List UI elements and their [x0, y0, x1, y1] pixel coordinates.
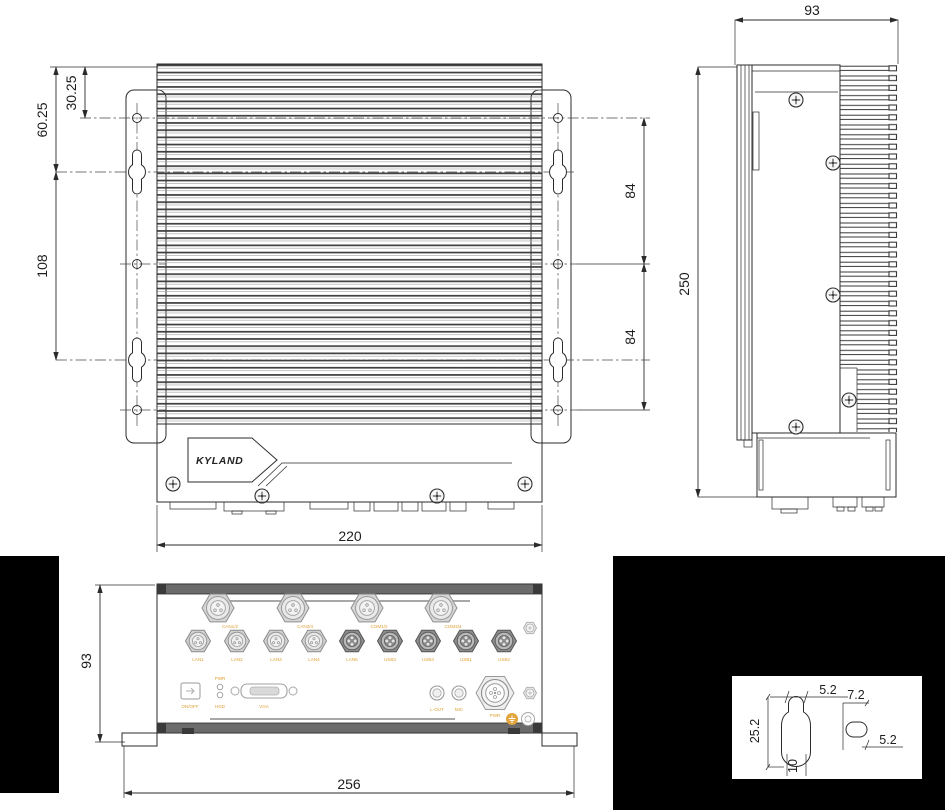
- front-panel: KYLAND: [166, 438, 532, 503]
- vga-screw: [289, 687, 297, 695]
- mic-label: MIC: [455, 707, 464, 712]
- hdd-led-label: HDD: [215, 704, 226, 709]
- keyhole-slot: [129, 150, 146, 194]
- com34-label: COM3/4: [444, 624, 462, 629]
- pwr-led: [217, 684, 223, 690]
- dim-5-2-right: 5.2: [879, 733, 896, 747]
- vga-label: VGA: [259, 704, 270, 709]
- pwr-led-label: PWR: [215, 676, 226, 681]
- side-screw: [789, 93, 803, 107]
- can-com-connectors: CAN1/2 CAN3/4 COM1/2 COM3/4: [202, 594, 462, 629]
- lan4-connector: [302, 630, 327, 652]
- usb1-label: USB1: [460, 657, 472, 662]
- lan3-label: LAN3: [270, 657, 282, 662]
- usb4-connector: [416, 630, 441, 652]
- side-view: 93 250: [676, 2, 898, 513]
- ground-symbol: [506, 713, 518, 725]
- dim-5-2-top: 5.2: [819, 683, 836, 697]
- ground-stud: [522, 713, 535, 726]
- usb2-label: USB2: [498, 657, 510, 662]
- lan5-label: LAN5: [346, 657, 358, 662]
- lan4-label: LAN4: [308, 657, 320, 662]
- logo-swoosh-2: [266, 466, 287, 486]
- panel-screw: [430, 489, 444, 503]
- logo-swoosh: [258, 463, 512, 486]
- mounting-plate-edge: [737, 65, 752, 440]
- chassis-screw: [524, 687, 537, 698]
- mounting-foot-right: [542, 733, 577, 746]
- hdd-led: [217, 692, 223, 698]
- can34-connector: [277, 594, 309, 622]
- mounting-foot-left: [122, 733, 157, 746]
- dim-7-2: 7.2: [847, 688, 864, 702]
- black-mask-left: [0, 556, 59, 793]
- usb3-label: USB3: [384, 657, 396, 662]
- dim-60-25: 60.25: [34, 102, 50, 137]
- power-label: PWR: [490, 713, 501, 718]
- lineout-label: L-OUT: [430, 707, 444, 712]
- lan2-connector: [225, 630, 250, 652]
- keyhole-slot: [550, 150, 567, 194]
- lan5-connector: [340, 630, 365, 652]
- dim-256: 256: [337, 776, 361, 792]
- dim-84-bottom: 84: [622, 329, 638, 345]
- chassis-screw: [524, 622, 537, 633]
- side-body: [752, 65, 840, 433]
- dimensional-drawing: KYLAND 30.25 60.: [0, 0, 945, 810]
- side-fins-upper: [840, 65, 898, 368]
- panel-screw: [166, 477, 180, 491]
- dim-108: 108: [34, 254, 50, 278]
- side-screw: [826, 288, 840, 302]
- lan-usb-connectors: LAN1 LAN2 LAN3 LAN4 LAN5 USB3 USB4 USB1 …: [186, 630, 517, 662]
- panel-screw: [255, 489, 269, 503]
- usb4-label: USB4: [422, 657, 434, 662]
- side-screw: [826, 156, 840, 170]
- brand-logo: KYLAND: [196, 455, 243, 467]
- keyhole-slot: [550, 338, 567, 382]
- lan1-connector: [186, 630, 211, 652]
- power-connector: [476, 677, 514, 710]
- io-connector-stubs: [170, 502, 514, 514]
- dim-93-bottom: 93: [78, 653, 94, 669]
- com12-label: COM1/2: [370, 624, 388, 629]
- technical-drawing-page: KYLAND 30.25 60.: [0, 0, 945, 810]
- usb2-connector: [492, 630, 517, 652]
- power-button-label: ON/OFF: [181, 704, 199, 709]
- lan1-label: LAN1: [192, 657, 204, 662]
- dim-220: 220: [338, 528, 362, 544]
- dim-30-25: 30.25: [63, 75, 79, 110]
- lan3-connector: [264, 630, 289, 652]
- bottom-edge-bar: [157, 723, 542, 733]
- bottom-view: CAN1/2 CAN3/4 COM1/2 COM3/4 LAN1 LAN2 LA…: [78, 584, 577, 798]
- vga-screw: [231, 687, 239, 695]
- front-view: KYLAND 30.25 60.: [34, 64, 650, 552]
- side-screw: [789, 420, 803, 434]
- can12-label: CAN1/2: [222, 624, 239, 629]
- usb3-connector: [378, 630, 403, 652]
- com12-connector: [351, 594, 383, 622]
- dim-10: 10: [786, 759, 800, 773]
- dim-25-2: 25.2: [748, 719, 762, 743]
- can34-label: CAN3/4: [297, 624, 314, 629]
- dim-250: 250: [676, 272, 692, 296]
- com34-connector: [425, 594, 457, 622]
- side-screw: [842, 393, 856, 407]
- panel-screw: [518, 477, 532, 491]
- dim-93-side: 93: [804, 2, 820, 18]
- keyhole-slot: [129, 338, 146, 382]
- lan2-label: LAN2: [231, 657, 243, 662]
- side-lower-box: [757, 433, 896, 497]
- usb1-connector: [454, 630, 479, 652]
- can12-connector: [202, 594, 234, 622]
- detail-view: 5.2 25.2 10 7.2 5.2: [732, 676, 922, 779]
- dim-84-top: 84: [622, 183, 638, 199]
- top-edge-bar: [157, 584, 542, 594]
- side-slot: [753, 112, 759, 170]
- side-connector-stubs: [772, 497, 884, 513]
- side-fins-lower: [857, 368, 898, 432]
